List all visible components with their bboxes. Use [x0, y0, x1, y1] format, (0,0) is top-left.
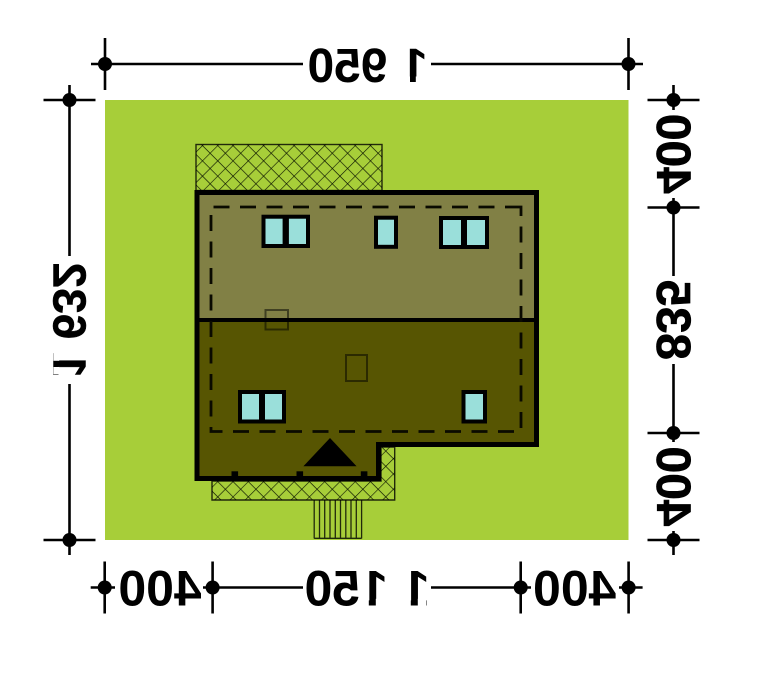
svg-text:1 150: 1 150 [304, 561, 429, 617]
svg-text:400: 400 [646, 446, 699, 526]
svg-text:1 950: 1 950 [307, 40, 427, 93]
svg-text:835: 835 [646, 280, 699, 360]
svg-text:400: 400 [646, 114, 699, 194]
svg-text:400: 400 [118, 561, 201, 617]
svg-text:400: 400 [533, 561, 616, 617]
svg-text:1 632: 1 632 [44, 262, 96, 377]
